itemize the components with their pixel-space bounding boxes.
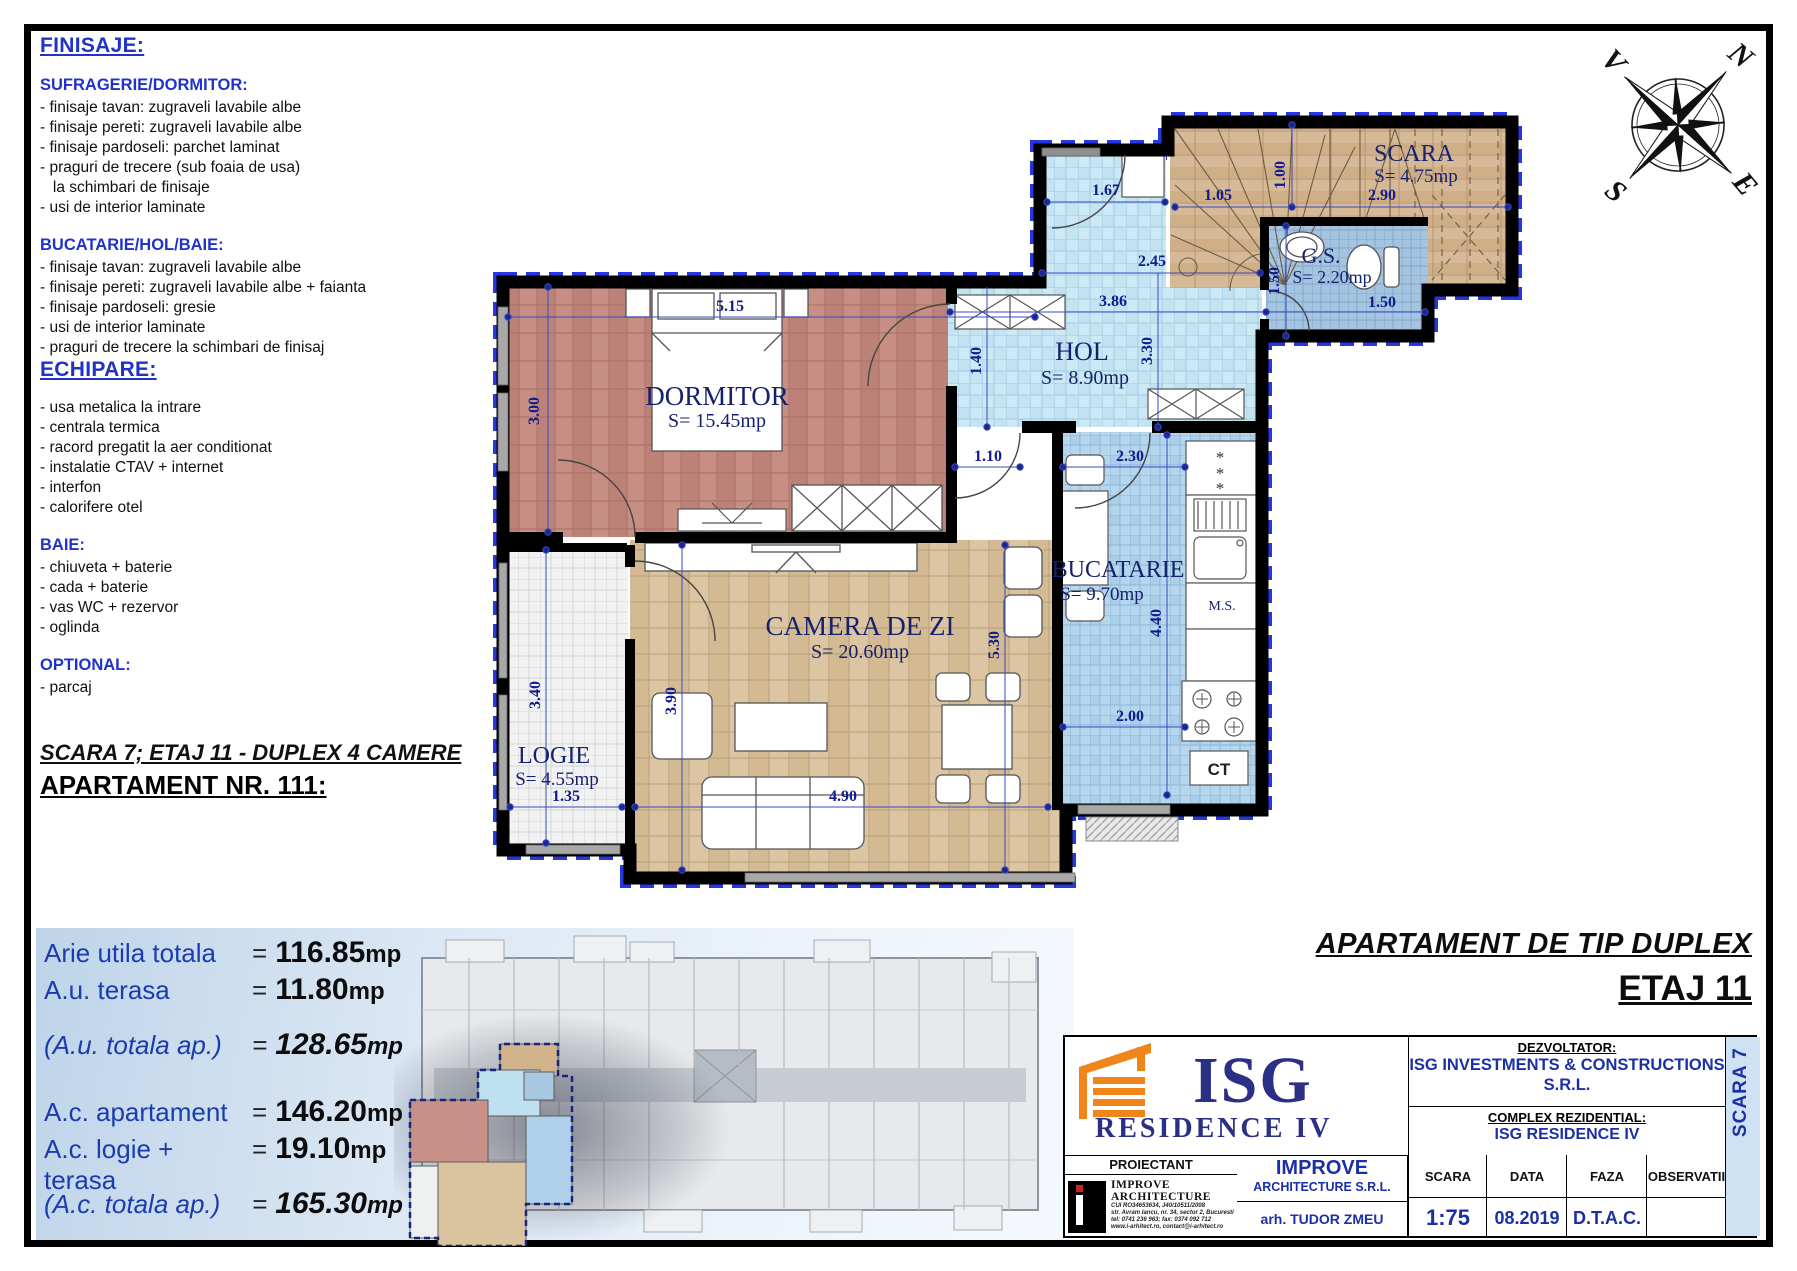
- compass-n: N: [1721, 35, 1761, 76]
- isg-logo-text: ISG: [1193, 1043, 1313, 1119]
- svg-text:2.90: 2.90: [1368, 187, 1396, 204]
- scale-header: SCARA: [1409, 1155, 1487, 1198]
- area-value: 146.20mp: [275, 1095, 403, 1129]
- area-value: 19.10mp: [275, 1132, 386, 1166]
- section-heading: BUCATARIE/HOL/BAIE:: [40, 236, 440, 255]
- scara7-label: SCARA 7: [1730, 1047, 1752, 1137]
- svg-text:3.00: 3.00: [526, 397, 543, 425]
- area-label: (A.c. totala ap.): [44, 1189, 252, 1220]
- room-area-gs: S= 2.20mp: [1292, 267, 1371, 287]
- complex-name: ISG RESIDENCE IV: [1409, 1126, 1725, 1144]
- spec-item: - finisaje tavan: zugraveli lavabile alb…: [40, 98, 440, 118]
- room-label-dormitor: DORMITOR: [645, 381, 789, 411]
- room-area-logie: S= 4.55mp: [515, 769, 599, 790]
- spec-item: - usa metalica la intrare: [40, 398, 440, 418]
- svg-text:1.50: 1.50: [1368, 294, 1396, 311]
- svg-text:2.00: 2.00: [1116, 708, 1144, 725]
- improve-info-line: CUI RO34653634, J40/10511/2008: [1111, 1203, 1234, 1210]
- spec-item: - chiuveta + baterie: [40, 558, 440, 578]
- area-label: (A.u. totala ap.): [44, 1030, 252, 1061]
- complex-cell: COMPLEX REZIDENTIAL: ISG RESIDENCE IV: [1408, 1107, 1725, 1155]
- svg-text:1.10: 1.10: [974, 448, 1002, 465]
- phase-col: FAZA D.T.A.C.: [1566, 1155, 1647, 1238]
- room-area-camera: S= 20.60mp: [811, 641, 909, 663]
- date-value: 08.2019: [1487, 1198, 1567, 1238]
- svg-text:5.15: 5.15: [716, 298, 744, 315]
- fridge-icon: *: [1216, 479, 1225, 498]
- finisaje-heading: FINISAJE:: [40, 34, 440, 58]
- svg-text:5.30: 5.30: [986, 631, 1003, 659]
- compass-v: V: [1598, 43, 1635, 82]
- isg-house-icon: [1073, 1041, 1191, 1121]
- room-label-bucatarie: BUCATARIE: [1052, 557, 1185, 583]
- proiectant-cell: PROIECTANT IMPROVE ARCHITECTURE CUI RO34…: [1065, 1155, 1237, 1238]
- compass-rose: N E S V: [1598, 33, 1770, 213]
- date-header: DATA: [1487, 1155, 1567, 1198]
- scara7-strip: SCARA 7: [1725, 1037, 1760, 1236]
- svg-text:1.50: 1.50: [1266, 267, 1283, 295]
- title-block: ISG RESIDENCE IV PROIECTANT IMPROVE ARCH…: [1063, 1035, 1757, 1238]
- spec-item: - finisaje pardoseli: parchet laminat: [40, 138, 440, 158]
- scara-etaj-line: SCARA 7; ETAJ 11 - DUPLEX 4 CAMERE: [40, 740, 461, 766]
- room-label-camera: CAMERA DE ZI: [766, 611, 955, 641]
- optional-heading: OPTIONAL:: [40, 656, 440, 675]
- architect-cell: IMPROVE ARCHITECTURE S.R.L. arh. TUDOR Z…: [1237, 1155, 1408, 1238]
- spec-list: - chiuveta + baterie- cada + baterie- va…: [40, 558, 440, 638]
- area-equals: =: [252, 1134, 267, 1165]
- area-value: 11.80mp: [275, 973, 384, 1007]
- area-unit: mp: [350, 1137, 386, 1164]
- svg-text:3.90: 3.90: [663, 687, 680, 715]
- finishes-column: FINISAJE: SUFRAGERIE/DORMITOR: - finisaj…: [40, 34, 440, 698]
- complex-label: COMPLEX REZIDENTIAL:: [1409, 1110, 1725, 1125]
- spec-item: - finisaje pereti: zugraveli lavabile al…: [40, 118, 440, 138]
- developer-label: DEZVOLTATOR:: [1409, 1040, 1725, 1055]
- phase-header: FAZA: [1567, 1155, 1647, 1198]
- spec-item: - praguri de trecere la schimbari de fin…: [40, 338, 440, 358]
- area-equals: =: [252, 1097, 267, 1128]
- floor-overview-plan: [394, 930, 1074, 1246]
- improve-logo-title: IMPROVE ARCHITECTURE: [1111, 1179, 1234, 1203]
- svg-text:3.30: 3.30: [1139, 337, 1156, 365]
- observations-col: OBSERVATII: [1646, 1155, 1726, 1238]
- room-label-scara: SCARA: [1374, 141, 1455, 167]
- spec-list: - usa metalica la intrare- centrala term…: [40, 398, 440, 518]
- plan-sheet: FINISAJE: SUFRAGERIE/DORMITOR: - finisaj…: [0, 0, 1797, 1271]
- section-heading: SUFRAGERIE/DORMITOR:: [40, 76, 440, 95]
- improve-info-line: str. Avram Iancu, nr. 34, sector 2, Bucu…: [1111, 1210, 1234, 1217]
- spec-item: - finisaje pardoseli: gresie: [40, 298, 440, 318]
- spec-list: - parcaj: [40, 678, 440, 698]
- spec-list: - finisaje tavan: zugraveli lavabile alb…: [40, 98, 440, 218]
- scale-value: 1:75: [1409, 1198, 1487, 1238]
- improve-info-line: tel: 0741 236 963; fax: 0374 092 712: [1111, 1217, 1234, 1224]
- room-label-hol: HOL: [1055, 337, 1108, 366]
- doormat: [1086, 817, 1178, 841]
- date-col: DATA 08.2019: [1486, 1155, 1567, 1238]
- observations-header: OBSERVATII: [1647, 1155, 1726, 1198]
- room-label-logie: LOGIE: [518, 743, 590, 769]
- architect-name: arh. TUDOR ZMEU: [1237, 1202, 1407, 1227]
- area-value: 128.65mp: [275, 1028, 403, 1062]
- spec-item: - centrala termica: [40, 418, 440, 438]
- area-label: Arie utila totala: [44, 938, 252, 969]
- room-label-gs: G.S.: [1301, 243, 1340, 268]
- spec-item: - racord pregatit la aer conditionat: [40, 438, 440, 458]
- spec-item: - finisaje pereti: zugraveli lavabile al…: [40, 278, 440, 298]
- area-unit: mp: [349, 978, 385, 1005]
- area-equals: =: [252, 1030, 267, 1061]
- room-area-hol: S= 8.90mp: [1041, 367, 1129, 389]
- svg-text:4.90: 4.90: [829, 788, 857, 805]
- area-label: A.u. terasa: [44, 975, 252, 1006]
- room-area-scara: S= 4.75mp: [1374, 166, 1458, 187]
- spec-item: - oglinda: [40, 618, 440, 638]
- spec-item: - usi de interior laminate: [40, 198, 440, 218]
- developer-cell: DEZVOLTATOR: ISG INVESTMENTS & CONSTRUCT…: [1408, 1037, 1725, 1107]
- area-label: A.c. logie + terasa: [44, 1134, 252, 1196]
- spec-item: - interfon: [40, 478, 440, 498]
- improve-info-line: www.i-arhitect.ro, contact@i-arhitect.ro: [1111, 1224, 1234, 1231]
- svg-text:1.00: 1.00: [1272, 161, 1289, 189]
- svg-text:1.05: 1.05: [1204, 187, 1232, 204]
- room-area-dormitor: S= 15.45mp: [668, 410, 766, 432]
- svg-text:1.67: 1.67: [1092, 182, 1120, 199]
- spec-item: - usi de interior laminate: [40, 318, 440, 338]
- compass-s: S: [1599, 173, 1633, 209]
- area-equals: =: [252, 975, 267, 1006]
- area-equals: =: [252, 938, 267, 969]
- improve-name: IMPROVE: [1237, 1157, 1407, 1180]
- area-value: 116.85mp: [275, 936, 401, 970]
- apartment-title: APARTAMENT NR. 111:: [40, 770, 327, 801]
- spec-item: - calorifere otel: [40, 498, 440, 518]
- spec-item: - cada + baterie: [40, 578, 440, 598]
- svg-text:3.86: 3.86: [1099, 293, 1127, 310]
- svg-text:2.45: 2.45: [1138, 253, 1166, 270]
- developer-name: ISG INVESTMENTS & CONSTRUCTIONS: [1409, 1056, 1725, 1075]
- svg-text:1.35: 1.35: [552, 788, 580, 805]
- area-value: 165.30mp: [275, 1187, 403, 1221]
- baie-heading: BAIE:: [40, 536, 440, 555]
- svg-text:3.40: 3.40: [527, 681, 544, 709]
- area-equals: =: [252, 1189, 267, 1220]
- developer-suffix: S.R.L.: [1409, 1076, 1725, 1095]
- improve-architecture-icon: [1068, 1181, 1106, 1233]
- wardrobe: [792, 485, 942, 531]
- spec-item: - instalatie CTAV + internet: [40, 458, 440, 478]
- floor-plan: * * *: [430, 95, 1550, 895]
- room-area-bucatarie: S= 9.70mp: [1060, 584, 1144, 605]
- observations-value: [1647, 1198, 1726, 1238]
- apartment-type-line: APARTAMENT DE TIP DUPLEX: [1052, 928, 1752, 961]
- floor-line: ETAJ 11: [1052, 969, 1752, 1009]
- improve-subname: ARCHITECTURE S.R.L.: [1237, 1180, 1407, 1194]
- spec-list: - finisaje tavan: zugraveli lavabile alb…: [40, 258, 440, 358]
- spec-item: - finisaje tavan: zugraveli lavabile alb…: [40, 258, 440, 278]
- isg-logo: ISG RESIDENCE IV: [1065, 1037, 1409, 1156]
- svg-text:2.30: 2.30: [1116, 448, 1144, 465]
- spec-item: - praguri de trecere (sub foaia de usa): [40, 158, 440, 178]
- isg-logo-subtext: RESIDENCE IV: [1095, 1113, 1333, 1145]
- plan-type-header: APARTAMENT DE TIP DUPLEX ETAJ 11: [1052, 928, 1752, 1009]
- ms-label: M.S.: [1208, 599, 1235, 614]
- spec-item: la schimbari de finisaje: [40, 178, 440, 198]
- echipare-heading: ECHIPARE:: [40, 358, 440, 382]
- compass-e: E: [1725, 165, 1764, 202]
- proiectant-label: PROIECTANT: [1065, 1155, 1237, 1175]
- spec-item: - parcaj: [40, 678, 440, 698]
- scale-col: SCARA 1:75: [1408, 1155, 1487, 1238]
- spec-item: - vas WC + rezervor: [40, 598, 440, 618]
- svg-text:4.40: 4.40: [1148, 609, 1165, 637]
- phase-value: D.T.A.C.: [1567, 1198, 1647, 1238]
- svg-text:1.40: 1.40: [968, 347, 985, 375]
- area-label: A.c. apartament: [44, 1097, 252, 1128]
- ct-label: CT: [1208, 760, 1231, 779]
